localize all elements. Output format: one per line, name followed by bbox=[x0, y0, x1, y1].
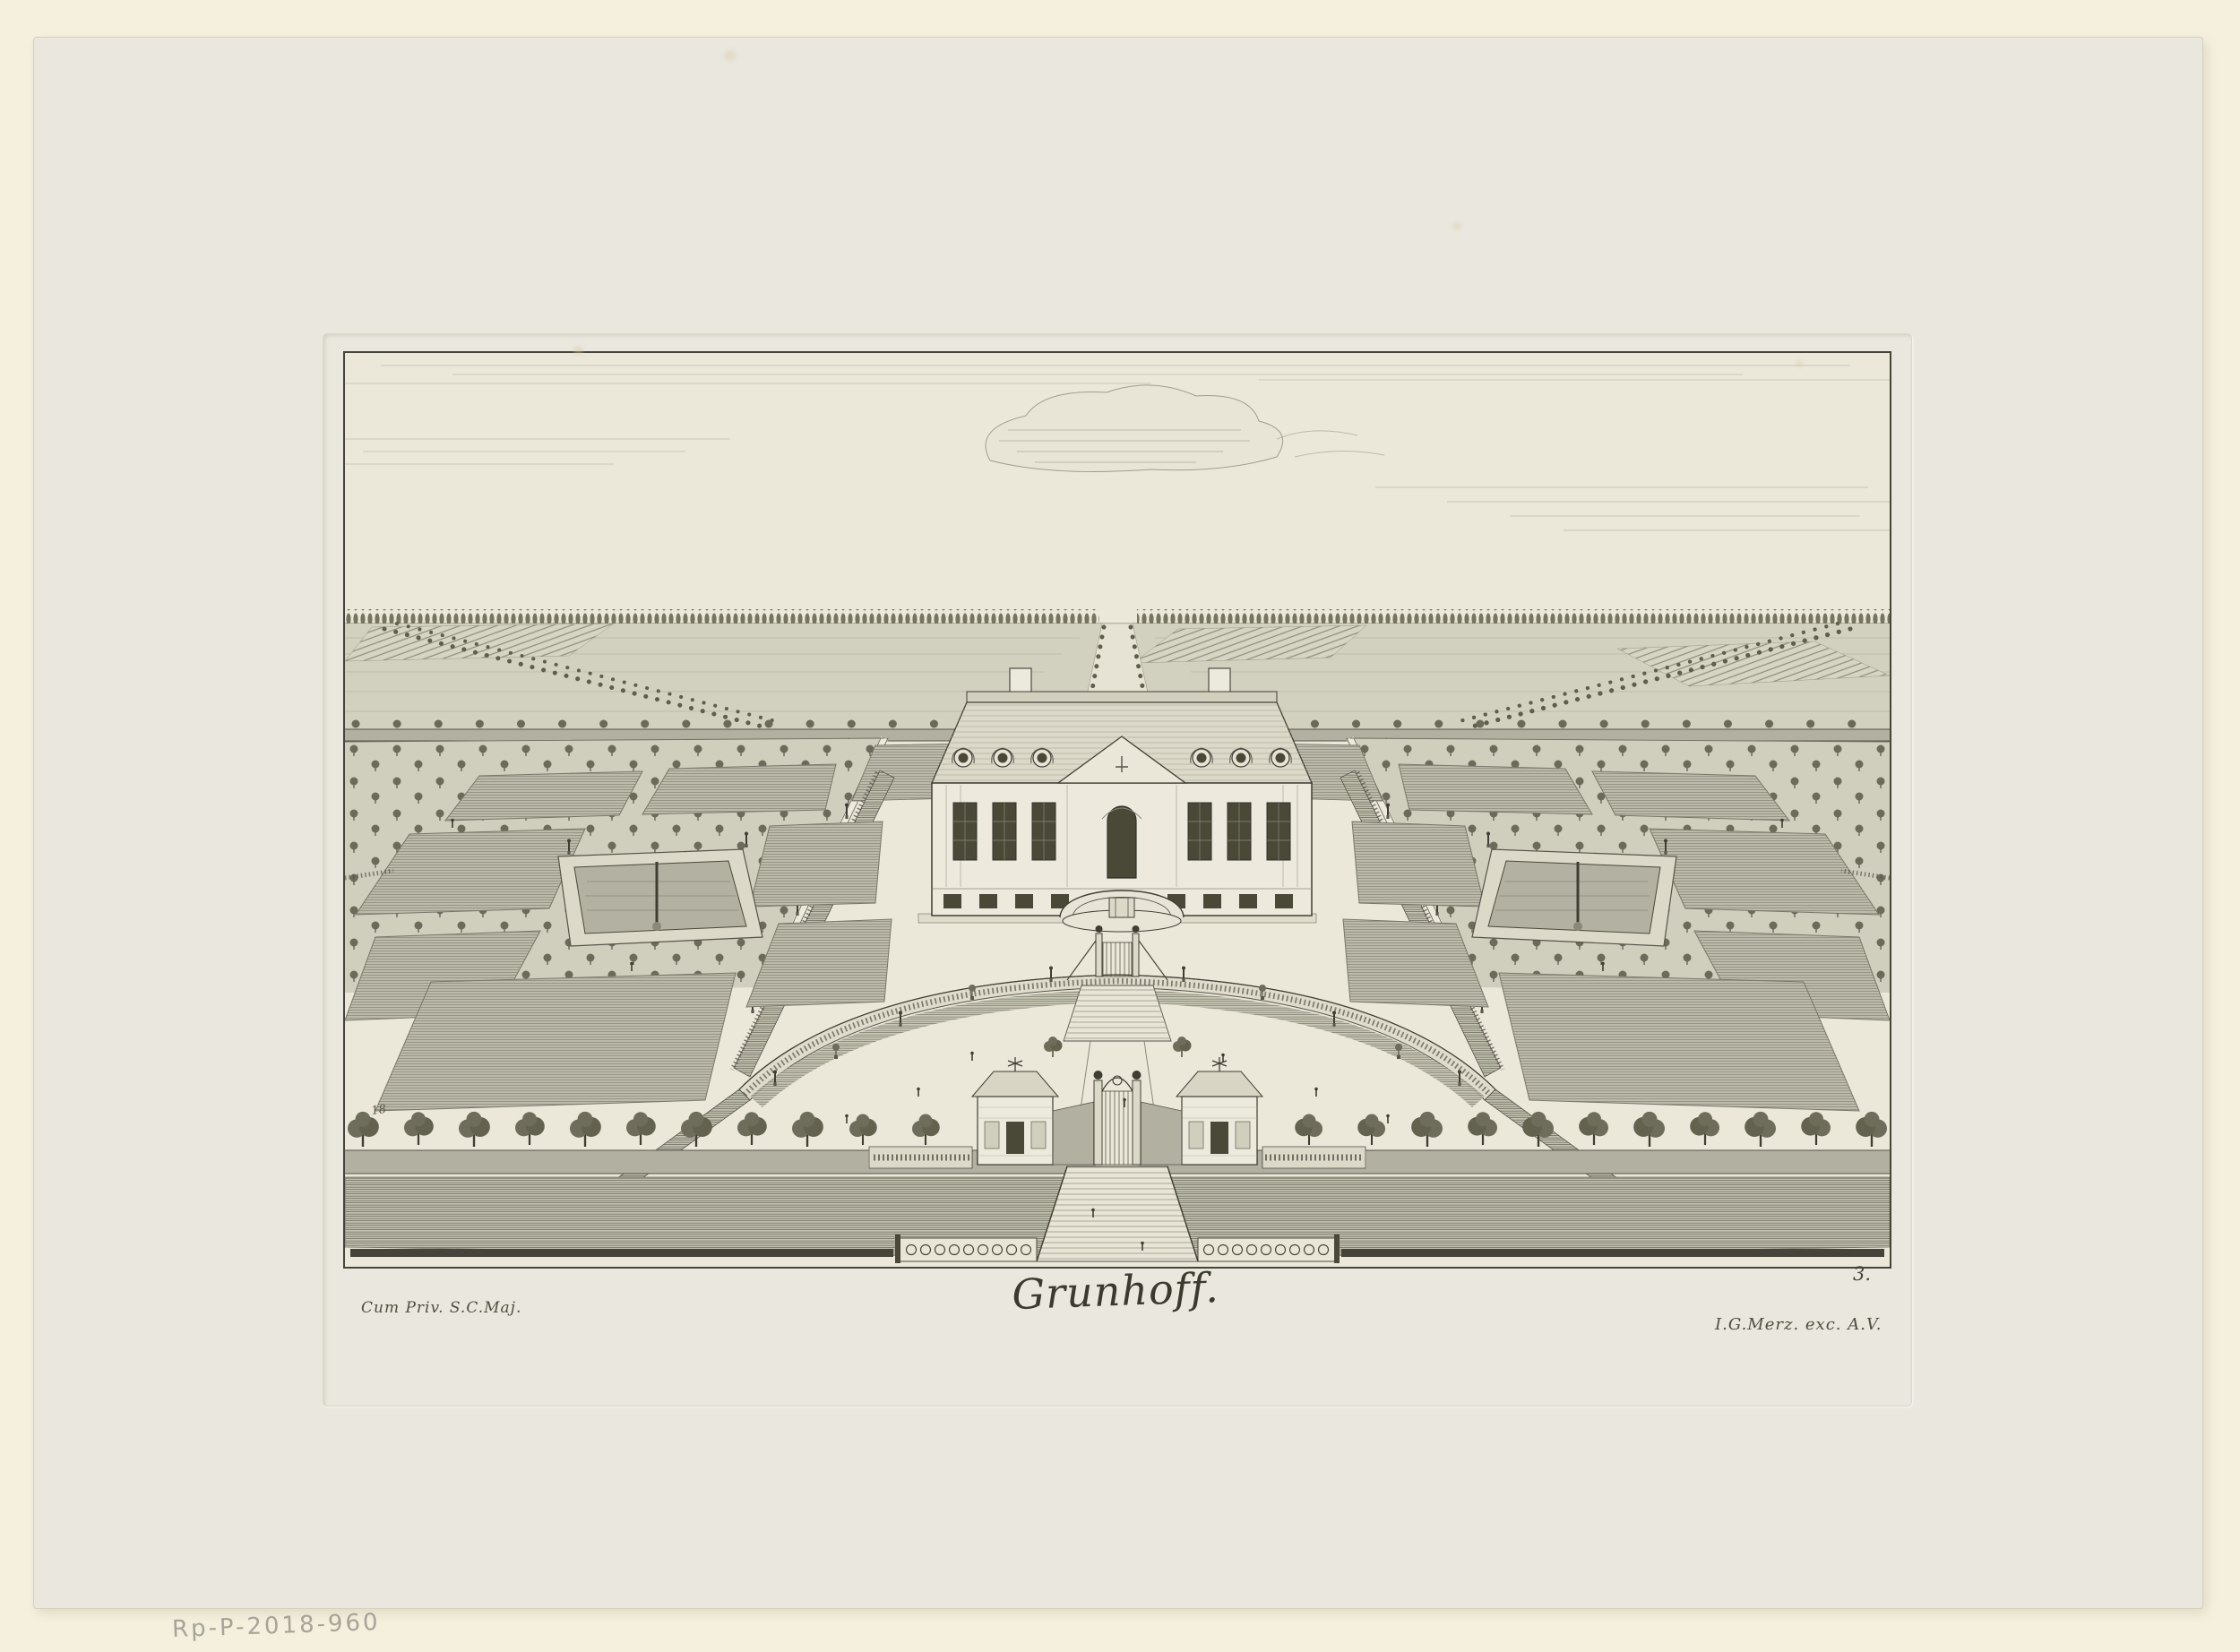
circle-fence bbox=[895, 1235, 1037, 1263]
fountain-basin bbox=[558, 849, 762, 946]
palace bbox=[918, 668, 1316, 932]
accession-number-pencil: Rp-P-2018-960 bbox=[172, 1609, 382, 1643]
pavilion-door bbox=[1006, 1122, 1024, 1154]
ditch-strip bbox=[350, 1249, 893, 1257]
privilege-inscription: Cum Priv. S.C.Maj. bbox=[361, 1299, 521, 1317]
balustrade-section bbox=[869, 1147, 972, 1168]
inner-gate-steps bbox=[1064, 985, 1171, 1041]
plate-corner-mark: 18 bbox=[370, 1103, 386, 1118]
mount-background: { "artwork": { "title": "Grunhoff.", "pr… bbox=[0, 0, 2240, 1652]
publisher-inscription: I.G.Merz. exc. A.V. bbox=[1715, 1315, 1882, 1334]
foxing-spot bbox=[1796, 360, 1803, 367]
etching-scene: 18 bbox=[345, 353, 1890, 1267]
central-arched-door bbox=[1107, 806, 1136, 878]
foxing-spot bbox=[724, 50, 737, 61]
foxing-spot bbox=[573, 346, 583, 355]
plate-number: 3. bbox=[1853, 1263, 1871, 1285]
title-inscription: Grunhoff. bbox=[980, 1262, 1251, 1320]
gate-wing-fence bbox=[1053, 1102, 1094, 1165]
print-sheet: 18 Grunhoff. Cum Priv. S.C.Maj. I.G.Merz… bbox=[34, 38, 2202, 1608]
etching-plate: 18 bbox=[343, 351, 1891, 1269]
foxing-spot bbox=[1452, 222, 1461, 230]
